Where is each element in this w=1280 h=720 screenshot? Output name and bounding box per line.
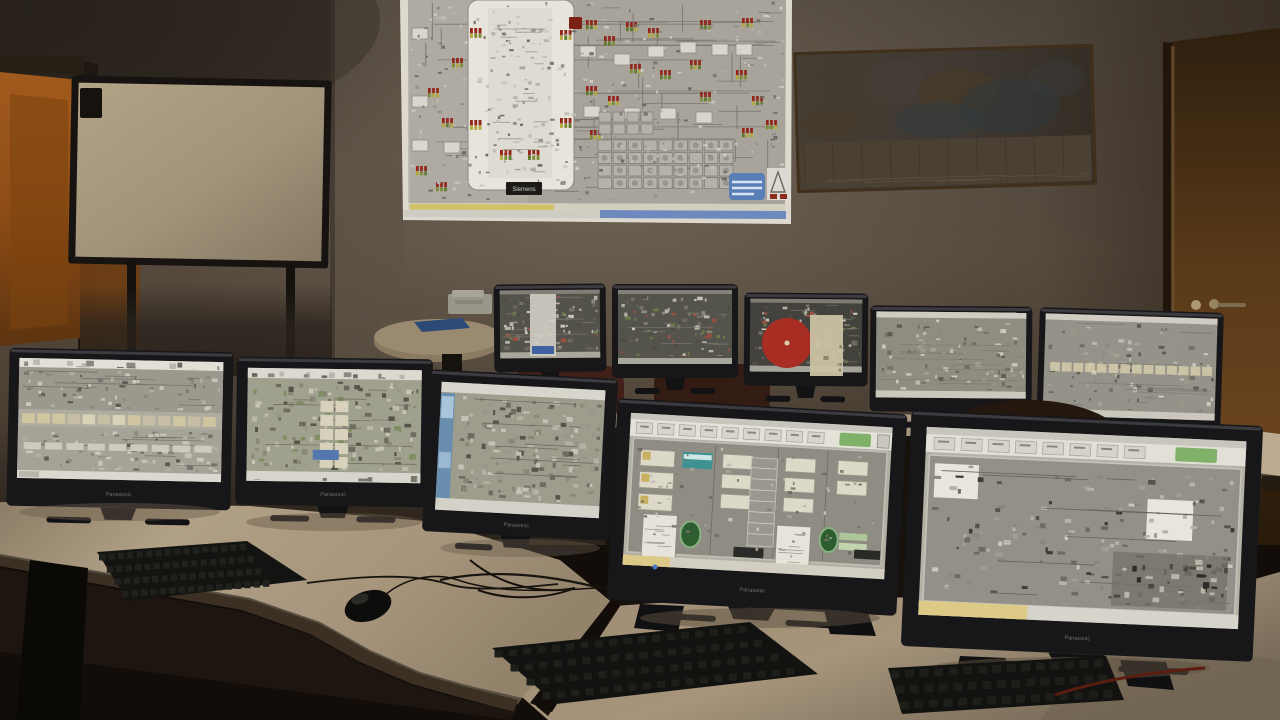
svg-text:Panasonic: Panasonic xyxy=(320,492,346,498)
svg-text:Panasonic: Panasonic xyxy=(1064,635,1090,642)
svg-text:Panasonic: Panasonic xyxy=(106,492,132,499)
svg-text:Siemens: Siemens xyxy=(512,187,535,193)
